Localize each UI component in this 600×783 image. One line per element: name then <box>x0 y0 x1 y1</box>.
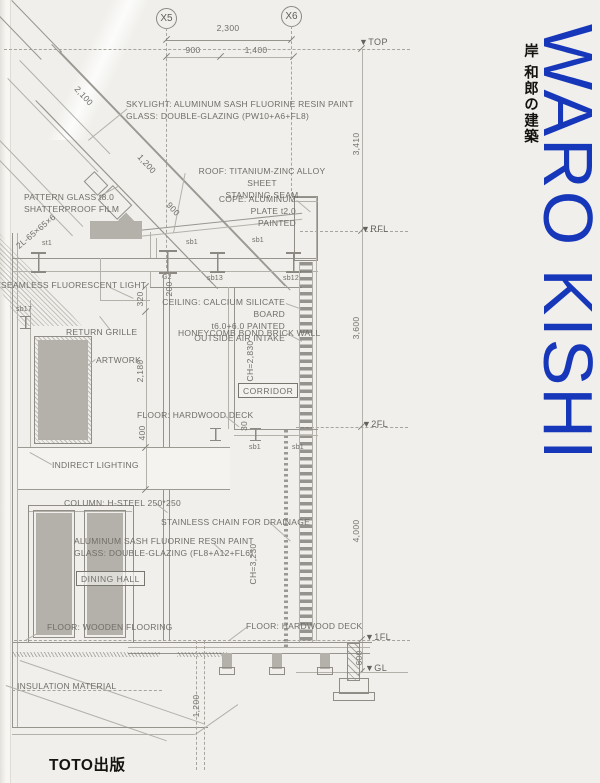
beam-label-sb1: sb1 <box>252 237 264 244</box>
level-marker-rfl: ▼RFL <box>361 224 389 234</box>
dim-3600: 3,600 <box>351 306 361 350</box>
sash-panel-inner <box>36 513 72 635</box>
bottom-structure-line <box>12 734 195 735</box>
steel-beam <box>31 252 46 273</box>
note-indirect-lighting: INDIRECT LIGHTING <box>52 460 139 472</box>
note-floor-hardwood-low: FLOOR: HARDWOOD DECK <box>246 621 362 633</box>
note-seamless-light: SEAMLESS FLUORESCENT LIGHT <box>1 280 146 292</box>
dim-ch2830: CH=2,830 <box>245 339 255 383</box>
skylight-hanger <box>150 232 151 258</box>
bottom-structure-line <box>195 704 238 735</box>
outer-wall-face <box>316 197 317 641</box>
deck-line <box>128 647 370 648</box>
leader-line <box>229 627 247 641</box>
beam-label-sb1: sb1 <box>292 444 304 451</box>
note-pattern-glass: PATTERN GLASS t8.0 SHATTERPROOF FILM <box>24 192 119 216</box>
ceiling-step <box>100 258 101 300</box>
level-line-top <box>4 49 410 50</box>
floor-line-1fl <box>12 642 372 643</box>
steel-beam <box>250 428 261 441</box>
note-floor-hardwood-mid: FLOOR: HARDWOOD DECK <box>137 410 253 422</box>
steel-beam <box>210 428 221 441</box>
roof-edge-detail <box>90 221 142 239</box>
foundation-base <box>333 692 375 701</box>
bottom-structure-line <box>12 727 208 728</box>
level-marker-gl: ▼GL <box>365 663 387 673</box>
dim-2300: 2,300 <box>198 23 258 33</box>
dimension-line <box>166 40 291 41</box>
dim-3410: 3,410 <box>351 122 361 166</box>
note-sash: ALUMINUM SASH FLUORINE RESIN PAINT GLASS… <box>74 536 254 560</box>
steel-beam-sb17 <box>20 316 31 329</box>
ground-hatch <box>177 652 227 657</box>
beam-label-sb13: sb13 <box>207 275 223 282</box>
steel-beam <box>210 252 225 273</box>
note-column: COLUMN: H-STEEL 250*250 <box>64 498 181 510</box>
dimension-line <box>166 57 293 58</box>
level-marker-2fl: ▼2FL <box>362 419 388 429</box>
ground-hatch <box>12 652 160 657</box>
note-angle-steel: 2L-65×65×6 <box>14 212 59 252</box>
note-insulation: INSULATION MATERIAL <box>17 681 116 693</box>
note-honeycomb: HONEYCOMB BOND BRICK WALL <box>178 328 320 340</box>
dim-1200: 1,200 <box>136 152 159 176</box>
dimension-line <box>146 287 147 490</box>
skylight-hanger <box>156 238 157 258</box>
foundation-pier <box>347 643 360 681</box>
dim-900: 900 <box>173 45 213 55</box>
paper-scan-edge <box>0 0 11 783</box>
note-return-grille: RETURN GRILLE <box>66 327 137 339</box>
note-chain: STAINLESS CHAIN FOR DRAINAGE <box>161 517 310 529</box>
section-break-line <box>204 641 205 770</box>
deck-line <box>128 653 370 654</box>
beam-label-sb17: sb17 <box>16 306 32 313</box>
room-label-dining-hall: DINING HALL <box>76 571 145 586</box>
room-label-corridor: CORRIDOR <box>238 383 298 398</box>
post-footing <box>317 667 333 675</box>
note-skylight: SKYLIGHT: ALUMINUM SASH FLUORINE RESIN P… <box>126 99 354 123</box>
book-title: WARO KISHI <box>528 24 600 461</box>
publisher-logo: TOTO出版 <box>49 753 126 775</box>
grid-bubble-x5: X5 <box>156 8 177 29</box>
dim-1400: 1,400 <box>236 45 276 55</box>
artwork-panel-frame <box>38 340 88 440</box>
brace-line <box>6 685 167 741</box>
ceiling-step <box>150 271 151 287</box>
grid-bubble-x6: X6 <box>281 6 302 27</box>
level-marker-top: ▼TOP <box>359 37 388 47</box>
level-dimension-chain <box>362 49 363 672</box>
book-cover: X5 X6 2,300 900 1,400 3,410 3,600 4,000 … <box>0 0 600 783</box>
beam-label-sb1: sb1 <box>249 444 261 451</box>
dim-4000: 4,000 <box>351 509 361 553</box>
note-floor-wooden: FLOOR: WOODEN FLOORING <box>47 622 172 634</box>
note-cope: COPE: ALUMINUM PLATE t2.0 PAINTED <box>200 194 296 230</box>
post-footing <box>219 667 235 675</box>
honeycomb-brick-wall <box>299 262 313 642</box>
note-artwork: ARTWORK <box>96 355 141 367</box>
level-marker-1fl: ▼1FL <box>365 632 391 642</box>
post-footing <box>269 667 285 675</box>
beam-label-sb12: sb12 <box>283 275 299 282</box>
grid-label: X5 <box>160 13 172 24</box>
beam-label-sb1: sb1 <box>186 239 198 246</box>
dim-1200-lower: 1,200 <box>191 684 201 728</box>
beam-label-st1: st1 <box>42 240 52 247</box>
grid-label: X6 <box>285 11 297 22</box>
